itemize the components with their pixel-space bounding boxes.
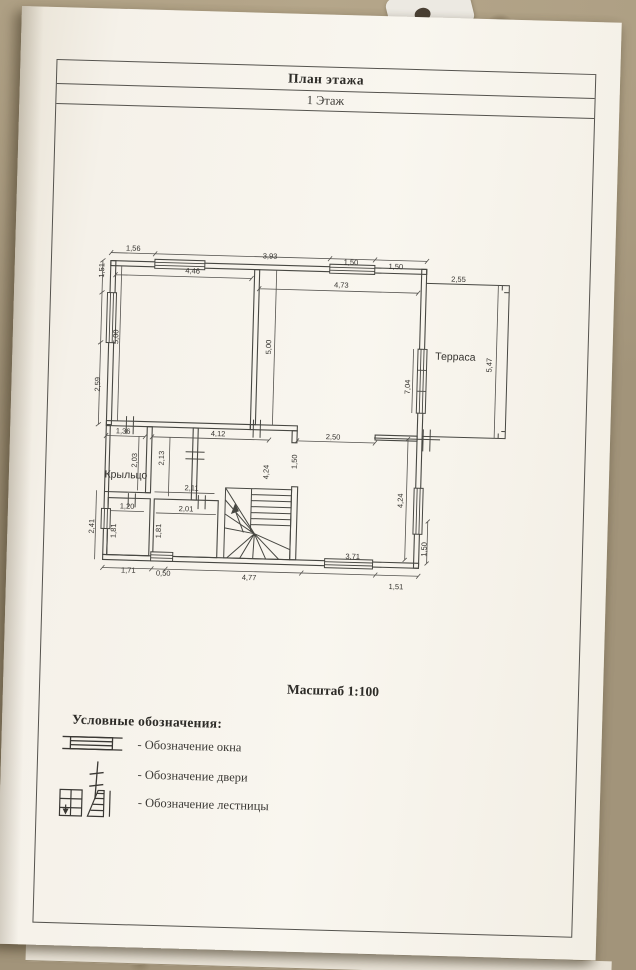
dimension-label: 4,73 <box>334 280 349 289</box>
dimension-label: 2,59 <box>93 377 102 392</box>
dimension-label: 2,13 <box>157 451 166 466</box>
dimension-label: 5,00 <box>264 340 273 355</box>
legend-door-label: - Обозначение двери <box>137 768 248 786</box>
dimension-label: 4,12 <box>211 429 226 438</box>
dimension-label: 0,50 <box>156 568 171 577</box>
dimension-label: 1,50 <box>419 542 428 557</box>
dimension-label: 4,46 <box>185 266 200 275</box>
dimension-label: 1,56 <box>126 243 141 252</box>
dimension-label: 2,03 <box>130 453 139 468</box>
room-label: Терраса <box>435 351 476 364</box>
dimension-label: 1,50 <box>388 262 403 271</box>
dimension-label: 5,00 <box>111 329 120 344</box>
dimension-label: 4,77 <box>242 573 257 582</box>
dimension-label: 2,55 <box>451 275 466 284</box>
dimension-label: 1,81 <box>109 523 118 538</box>
stairs-symbol-icon <box>57 787 114 819</box>
dimension-label: 1,50 <box>290 454 299 469</box>
dimension-label: 1,36 <box>116 426 131 435</box>
dimension-label: 7,04 <box>403 379 412 394</box>
dimension-label: 1,50 <box>344 258 359 267</box>
floor-plan-drawing <box>86 244 528 604</box>
dimension-label: 4,24 <box>396 493 405 508</box>
dimension-label: 3,93 <box>263 251 278 260</box>
dimension-label: 1,81 <box>154 524 163 539</box>
dimension-label: 4,24 <box>261 465 270 480</box>
dimension-label: 1,51 <box>389 582 404 591</box>
dimension-label: 2,01 <box>179 504 194 513</box>
dimension-label: 2,50 <box>326 432 341 441</box>
photo-scene: План этажа 1 Этаж <box>0 0 636 970</box>
document-page: План этажа 1 Этаж <box>0 6 622 960</box>
dimension-label: 1,51 <box>97 263 106 278</box>
legend-window-label: - Обозначение окна <box>137 738 241 756</box>
window-symbol-icon <box>61 732 124 754</box>
dimension-label: 5,47 <box>484 358 493 373</box>
dimension-label: 2,41 <box>87 519 96 534</box>
dimension-label: 2,11 <box>184 483 198 492</box>
floor-plan: 1,563,931,501,504,464,732,551,515,002,59… <box>86 244 528 604</box>
dimension-label: 1,71 <box>121 565 136 574</box>
dimension-label: 3,71 <box>345 552 360 561</box>
room-label: Крыльцо <box>104 468 147 481</box>
dimension-label: 1,20 <box>120 501 135 510</box>
